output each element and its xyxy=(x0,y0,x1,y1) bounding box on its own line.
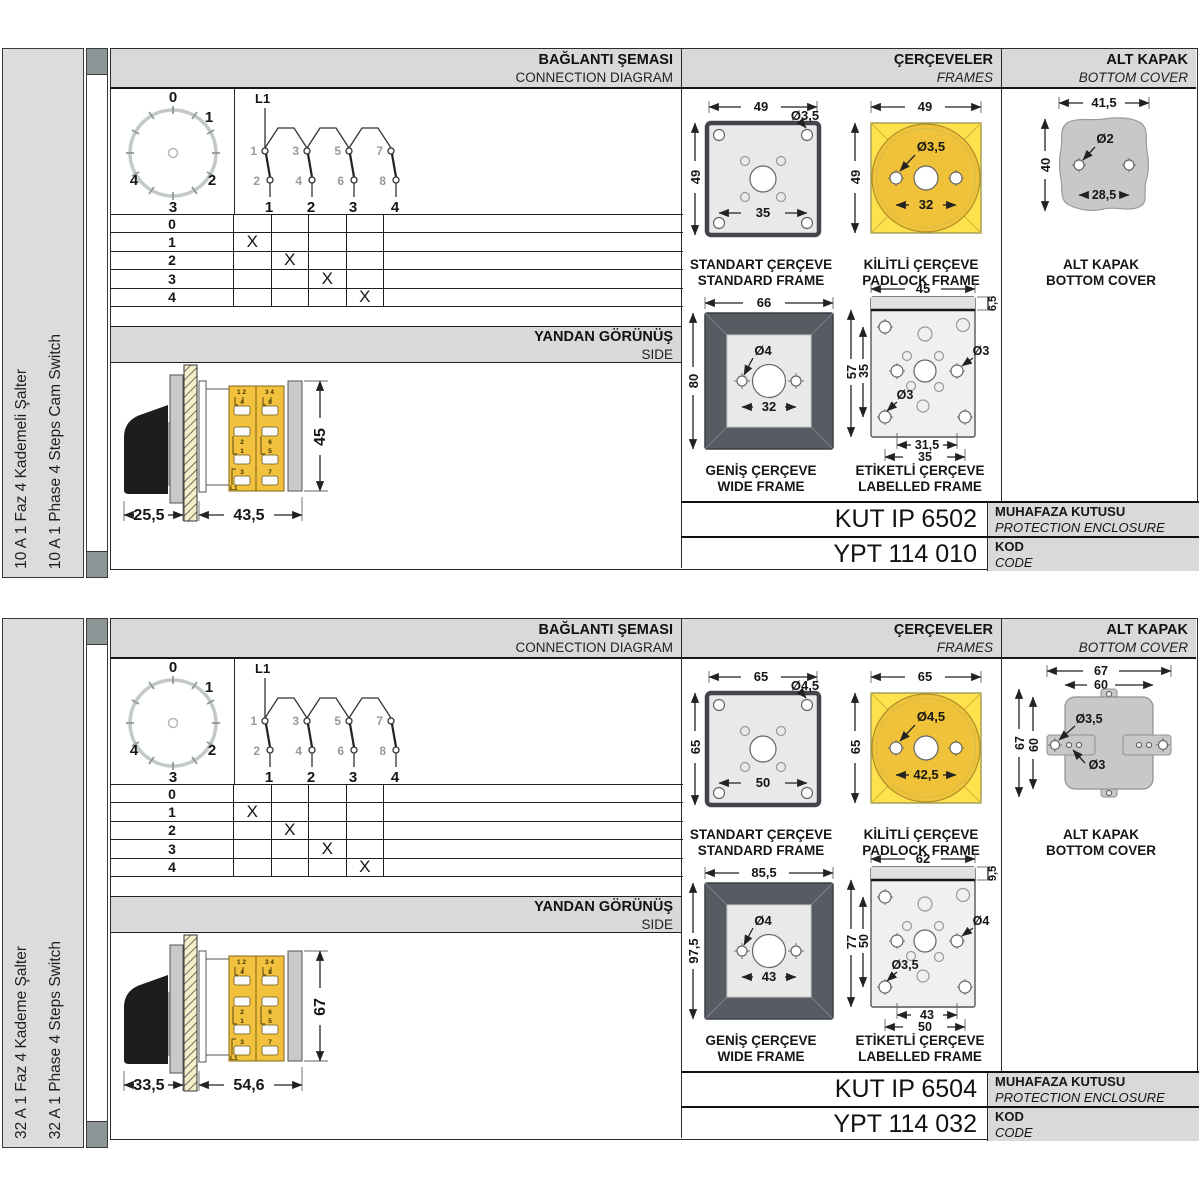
caption-en: WIDE FRAME xyxy=(683,1049,839,1065)
mark-cell xyxy=(309,233,347,250)
dim-width: 66 xyxy=(757,295,771,310)
dial-label-1: 1 xyxy=(205,679,213,696)
code-value: YPT 114 032 xyxy=(681,1108,987,1141)
mark-cell xyxy=(272,803,310,820)
dim-hole: Ø4,5 xyxy=(791,678,819,693)
mounting-panel xyxy=(184,365,197,521)
body-label: 6 xyxy=(268,1009,272,1016)
dim-height-inner: 50 xyxy=(857,934,871,948)
mark-cell xyxy=(272,289,310,306)
header-en: BOTTOM COVER xyxy=(1001,639,1188,656)
dim-width: 85,5 xyxy=(751,865,776,880)
enclosure-row: KUT IP 6504 MUHAFAZA KUTUSU PROTECTION E… xyxy=(681,1071,1199,1106)
neck xyxy=(206,959,229,1055)
row-label: 0 xyxy=(111,785,234,802)
enclosure-label: MUHAFAZA KUTUSU PROTECTION ENCLOSURE xyxy=(987,503,1199,536)
dim-span: 43 xyxy=(762,969,776,984)
dim-hole-small: Ø3 xyxy=(1089,758,1106,772)
header-en: CONNECTION DIAGRAM xyxy=(111,69,673,86)
dial-label-0: 0 xyxy=(169,659,177,676)
header-tr: BAĞLANTI ŞEMASI xyxy=(111,621,673,639)
body-label: 4 xyxy=(240,969,244,976)
catalog-page: 10 A 1 Faz 4 Kademeli Şalter 10 A 1 Phas… xyxy=(0,0,1200,1200)
divider xyxy=(681,49,682,568)
product-title-tr: 10 A 1 Faz 4 Kademeli Şalter xyxy=(13,369,31,569)
body-label: 2 xyxy=(240,439,244,446)
row-label: 3 xyxy=(111,270,234,287)
dial-label-2: 2 xyxy=(208,172,216,189)
body-label: 3 xyxy=(240,469,244,476)
dim-height: 45 xyxy=(312,428,329,446)
caption-tr: ALT KAPAK xyxy=(1003,827,1199,843)
label-strip xyxy=(871,297,975,310)
table-row: 0 xyxy=(111,214,683,232)
caption-en: BOTTOM COVER xyxy=(1003,273,1199,289)
dim-height: 67 xyxy=(312,998,329,1016)
product-title-en: 32 A 1 Phase 4 Steps Switch xyxy=(47,941,65,1139)
binding-strip xyxy=(86,618,108,1148)
mark-cell xyxy=(347,822,385,839)
divider xyxy=(681,619,682,1138)
mark-cell: X xyxy=(272,822,310,839)
terminal-number: 5 xyxy=(334,714,341,728)
mark-cell xyxy=(309,215,347,232)
dial-label-2: 2 xyxy=(208,742,216,759)
body-feed-label: L1 xyxy=(230,485,238,492)
standard-frame-drawing: 49 49 Ø3,5 35 xyxy=(683,91,839,255)
terminal-number: 7 xyxy=(376,144,383,158)
terminal-number: 1 xyxy=(250,714,257,728)
code-label: KOD CODE xyxy=(987,1108,1199,1141)
side-view-header: YANDAN GÖRÜNÜŞ SIDE xyxy=(111,326,681,363)
dim-span: 32 xyxy=(762,399,776,414)
row-label: 2 xyxy=(111,822,234,839)
label-tr: MUHAFAZA KUTUSU xyxy=(995,504,1199,520)
body-label: 3 4 xyxy=(265,959,274,966)
code-row: YPT 114 010 KOD CODE xyxy=(681,536,1199,571)
switch-position-dial: 0 1 2 3 4 xyxy=(111,90,234,214)
mark-cell xyxy=(272,859,310,876)
bottom-cover-drawing: 41,5 40 Ø2 28,5 xyxy=(1003,93,1199,255)
table-row: 3 X xyxy=(111,839,683,857)
standard-frame-caption: STANDART ÇERÇEVE STANDARD FRAME xyxy=(683,257,839,289)
table-row: 4 X xyxy=(111,288,683,306)
row-label: 1 xyxy=(111,803,234,820)
switching-table: 0 1 X 2 X 3 xyxy=(111,784,683,876)
contact-1: 1 2 1 xyxy=(250,144,273,216)
dim-span: 32 xyxy=(919,197,933,212)
mark-cell xyxy=(347,215,385,232)
dim-strip: 9,5 xyxy=(987,866,999,881)
mark-cell xyxy=(309,859,347,876)
contact-2: 3 4 2 xyxy=(292,144,315,216)
mark-cell xyxy=(234,215,272,232)
dim-depth-body: 54,6 xyxy=(233,1077,264,1094)
wide-frame-drawing: 85,5 97,5 Ø4 43 xyxy=(683,861,839,1031)
labelled-frame-drawing: 62 9,5 Ø4 Ø3,5 77 50 xyxy=(841,849,999,1033)
dim-span: 28,5 xyxy=(1092,188,1116,202)
dim-height: 49 xyxy=(688,170,703,184)
front-plate xyxy=(170,945,183,1073)
feed-label: L1 xyxy=(255,661,270,676)
product-sidebar: 10 A 1 Faz 4 Kademeli Şalter 10 A 1 Phas… xyxy=(2,48,84,578)
body-label: 2 xyxy=(240,1009,244,1016)
terminal-number: 8 xyxy=(379,174,386,188)
mark-cell xyxy=(234,859,272,876)
row-label: 2 xyxy=(111,252,234,269)
feed-label: L1 xyxy=(255,91,270,106)
dim-height: 49 xyxy=(848,170,863,184)
mark-cell: X xyxy=(309,840,347,857)
caption-tr: GENİŞ ÇERÇEVE xyxy=(683,463,839,479)
mark-cell xyxy=(309,252,347,269)
flange xyxy=(199,381,206,492)
contact-2: 3 4 2 xyxy=(292,714,315,786)
row-label: 0 xyxy=(111,215,234,232)
mark-cell xyxy=(272,215,310,232)
standard-frame-drawing: 65 65 Ø4,5 50 xyxy=(683,661,839,825)
frames-header: ÇERÇEVELER FRAMES xyxy=(681,619,1001,659)
dim-width: 49 xyxy=(918,99,932,114)
caption-tr: STANDART ÇERÇEVE xyxy=(683,257,839,273)
caption-en: STANDARD FRAME xyxy=(683,843,839,859)
dim-hole: Ø4 xyxy=(754,343,772,358)
mark-cell xyxy=(234,289,272,306)
row-label: 3 xyxy=(111,840,234,857)
mark-cell: X xyxy=(309,270,347,287)
mark-cell xyxy=(347,785,385,802)
body-feed-label: L1 xyxy=(230,1055,238,1062)
label-en: PROTECTION ENCLOSURE xyxy=(995,520,1199,535)
mark-cell xyxy=(347,270,385,287)
table-row: 1 X xyxy=(111,232,683,250)
dim-hole: Ø3,5 xyxy=(791,108,819,123)
dim-hole: Ø4 xyxy=(754,913,772,928)
panel-content: BAĞLANTI ŞEMASI CONNECTION DIAGRAM ÇERÇE… xyxy=(110,618,1198,1140)
table-row: 2 X xyxy=(111,251,683,269)
dim-height-inner: 60 xyxy=(1027,738,1041,752)
label-strip xyxy=(871,867,975,880)
wide-frame-caption: GENİŞ ÇERÇEVE WIDE FRAME xyxy=(683,463,839,495)
terminal-number: 4 xyxy=(295,174,302,188)
terminal-number: 8 xyxy=(379,744,386,758)
terminal-number: 2 xyxy=(253,744,260,758)
dim-depth-body: 43,5 xyxy=(233,507,264,524)
mark-cell xyxy=(272,840,310,857)
mark-cell xyxy=(347,252,385,269)
order-info: KUT IP 6504 MUHAFAZA KUTUSU PROTECTION E… xyxy=(681,1071,1199,1141)
mark-cell xyxy=(234,270,272,287)
contact-3: 5 6 3 xyxy=(334,714,357,786)
end-cap xyxy=(288,381,302,491)
dim-span-outer: 35 xyxy=(918,450,932,464)
dim-width-outer: 67 xyxy=(1094,664,1108,678)
padlock-frame-drawing: 65 65 Ø4,5 42,5 xyxy=(843,661,999,825)
row-label: 4 xyxy=(111,859,234,876)
terminal-number: 6 xyxy=(337,744,344,758)
dim-width: 45 xyxy=(916,281,930,296)
header-tr: YANDAN GÖRÜNÜŞ xyxy=(111,898,673,916)
body-label: 3 4 xyxy=(265,389,274,396)
header-tr: YANDAN GÖRÜNÜŞ xyxy=(111,328,673,346)
connection-diagram-header: BAĞLANTI ŞEMASI CONNECTION DIAGRAM xyxy=(111,49,681,89)
terminal-number: 7 xyxy=(376,714,383,728)
mark-cell: X xyxy=(234,233,272,250)
neck xyxy=(206,389,229,485)
code-label: KOD CODE xyxy=(987,538,1199,571)
dim-height: 97,5 xyxy=(686,938,701,963)
terminal-number: 3 xyxy=(292,144,299,158)
dim-strip: 6,5 xyxy=(987,296,999,311)
terminal-number: 3 xyxy=(292,714,299,728)
dim-height-outer: 67 xyxy=(1013,736,1027,750)
dim-hole-right: Ø4 xyxy=(973,914,990,928)
dial-label-1: 1 xyxy=(205,109,213,126)
body-label: 6 xyxy=(268,439,272,446)
dim-height-inner: 35 xyxy=(857,364,871,378)
switching-table: 0 1 X 2 X 3 xyxy=(111,214,683,306)
caption-tr: STANDART ÇERÇEVE xyxy=(683,827,839,843)
dim-hole: Ø2 xyxy=(1096,131,1113,146)
product-title-en: 10 A 1 Phase 4 Steps Cam Switch xyxy=(47,334,65,569)
dim-hole-right: Ø3 xyxy=(973,344,990,358)
mark-cell xyxy=(347,840,385,857)
bottom-cover-drawing: 67 60 67 60 Ø3,5 Ø3 xyxy=(1003,663,1199,825)
bottom-cover-caption: ALT KAPAK BOTTOM COVER xyxy=(1003,827,1199,859)
header-en: SIDE xyxy=(111,916,673,933)
header-tr: ÇERÇEVELER xyxy=(681,51,993,69)
dim-span-outer: 50 xyxy=(918,1020,932,1034)
dial-label-4: 4 xyxy=(130,172,139,189)
mark-cell xyxy=(234,822,272,839)
labelled-frame-caption: ETİKETLİ ÇERÇEVE LABELLED FRAME xyxy=(841,1033,999,1065)
mark-cell xyxy=(272,233,310,250)
switch-handle xyxy=(124,405,168,494)
product-sidebar: 32 A 1 Faz 4 Kademe Şalter 32 A 1 Phase … xyxy=(2,618,84,1148)
body-label: 7 xyxy=(268,469,272,476)
terminal-number: 2 xyxy=(253,174,260,188)
caption-tr: GENİŞ ÇERÇEVE xyxy=(683,1033,839,1049)
mark-cell xyxy=(272,270,310,287)
strip-square-bottom xyxy=(87,1121,107,1147)
terminal-number: 6 xyxy=(337,174,344,188)
caption-tr: KİLİTLİ ÇERÇEVE xyxy=(843,257,999,273)
dim-hole-left: Ø3,5 xyxy=(891,958,918,972)
divider xyxy=(1001,49,1002,501)
dim-width: 49 xyxy=(754,99,768,114)
table-bottom-line xyxy=(111,306,683,307)
front-plate xyxy=(170,375,183,503)
enclosure-value: KUT IP 6504 xyxy=(681,1073,987,1106)
code-value: YPT 114 010 xyxy=(681,538,987,571)
flange xyxy=(199,951,206,1062)
standard-frame-caption: STANDART ÇERÇEVE STANDARD FRAME xyxy=(683,827,839,859)
dim-depth-front: 33,5 xyxy=(133,1077,164,1094)
labelled-frame-caption: ETİKETLİ ÇERÇEVE LABELLED FRAME xyxy=(841,463,999,495)
caption-tr: ETİKETLİ ÇERÇEVE xyxy=(841,463,999,479)
table-bottom-line xyxy=(111,876,683,877)
table-row: 0 xyxy=(111,784,683,802)
product-panel-10a: 10 A 1 Faz 4 Kademeli Şalter 10 A 1 Phas… xyxy=(0,48,1200,578)
dim-height: 40 xyxy=(1038,158,1053,172)
dim-height: 80 xyxy=(686,374,701,388)
body-label: 5 xyxy=(268,1018,272,1025)
enclosure-row: KUT IP 6502 MUHAFAZA KUTUSU PROTECTION E… xyxy=(681,501,1199,536)
caption-tr: ALT KAPAK xyxy=(1003,257,1199,273)
enclosure-label: MUHAFAZA KUTUSU PROTECTION ENCLOSURE xyxy=(987,1073,1199,1106)
dial-label-4: 4 xyxy=(130,742,139,759)
row-label: 4 xyxy=(111,289,234,306)
bottom-cover-header: ALT KAPAK BOTTOM COVER xyxy=(1001,49,1196,89)
header-tr: ALT KAPAK xyxy=(1001,51,1188,69)
body-label: 3 xyxy=(240,1039,244,1046)
dim-span: 42,5 xyxy=(913,767,938,782)
label-tr: KOD xyxy=(995,539,1199,555)
header-en: SIDE xyxy=(111,346,673,363)
connection-diagram-header: BAĞLANTI ŞEMASI CONNECTION DIAGRAM xyxy=(111,619,681,659)
mark-cell xyxy=(309,803,347,820)
mark-cell: X xyxy=(347,859,385,876)
dim-inner: 50 xyxy=(756,775,770,790)
mark-cell xyxy=(234,252,272,269)
body-label: 5 xyxy=(268,448,272,455)
dim-width: 65 xyxy=(754,669,768,684)
table-row: 1 X xyxy=(111,802,683,820)
body-label: 1 2 xyxy=(237,959,246,966)
switch-position-dial: 0 1 2 3 4 xyxy=(111,660,234,784)
caption-en: BOTTOM COVER xyxy=(1003,843,1199,859)
table-row: 4 X xyxy=(111,858,683,876)
dim-width: 62 xyxy=(916,851,930,866)
dim-width: 41,5 xyxy=(1091,95,1116,110)
mark-cell: X xyxy=(272,252,310,269)
contact-schematic: L1 1 2 1 3 4 2 5 6 3 xyxy=(235,90,485,214)
contact-3: 5 6 3 xyxy=(334,144,357,216)
caption-tr: ETİKETLİ ÇERÇEVE xyxy=(841,1033,999,1049)
body-label: 1 xyxy=(240,1018,244,1025)
dim-hole: Ø3,5 xyxy=(917,139,945,154)
dim-depth-front: 25,5 xyxy=(133,507,164,524)
label-en: CODE xyxy=(995,555,1199,570)
body-label: 8 xyxy=(268,399,272,406)
dim-inner: 35 xyxy=(756,205,770,220)
header-en: BOTTOM COVER xyxy=(1001,69,1188,86)
table-row: 3 X xyxy=(111,269,683,287)
product-panel-32a: 32 A 1 Faz 4 Kademe Şalter 32 A 1 Phase … xyxy=(0,618,1200,1148)
mark-cell xyxy=(272,785,310,802)
contact-1: 1 2 1 xyxy=(250,714,273,786)
end-cap xyxy=(288,951,302,1061)
caption-en: LABELLED FRAME xyxy=(841,1049,999,1065)
mark-cell xyxy=(347,233,385,250)
mark-cell xyxy=(234,785,272,802)
bridge-links xyxy=(265,128,391,148)
header-en: FRAMES xyxy=(681,639,993,656)
mark-cell xyxy=(347,803,385,820)
code-row: YPT 114 032 KOD CODE xyxy=(681,1106,1199,1141)
contact-4: 7 8 4 xyxy=(376,714,400,786)
terminal-number: 4 xyxy=(295,744,302,758)
contact-schematic: L1 1 2 1 3 4 2 5 6 3 xyxy=(235,660,485,784)
caption-tr: KİLİTLİ ÇERÇEVE xyxy=(843,827,999,843)
product-title-tr: 32 A 1 Faz 4 Kademe Şalter xyxy=(13,946,31,1139)
strip-square-top xyxy=(87,49,107,75)
mark-cell xyxy=(309,289,347,306)
body-label: 8 xyxy=(268,969,272,976)
body-label: 1 xyxy=(240,448,244,455)
labelled-frame-drawing: 45 6,5 Ø3 Ø3 57 35 xyxy=(841,279,999,463)
binding-strip xyxy=(86,48,108,578)
row-label: 1 xyxy=(111,233,234,250)
dim-hole-left: Ø3 xyxy=(897,388,914,402)
header-tr: ALT KAPAK xyxy=(1001,621,1188,639)
mark-cell: X xyxy=(234,803,272,820)
side-view-header: YANDAN GÖRÜNÜŞ SIDE xyxy=(111,896,681,933)
terminal-number: 5 xyxy=(334,144,341,158)
bridge-links xyxy=(265,698,391,718)
mark-cell: X xyxy=(347,289,385,306)
contact-4: 7 8 4 xyxy=(376,144,400,216)
body-label: 7 xyxy=(268,1039,272,1046)
label-tr: KOD xyxy=(995,1109,1199,1125)
mark-cell xyxy=(234,840,272,857)
header-tr: BAĞLANTI ŞEMASI xyxy=(111,51,673,69)
switch-handle xyxy=(124,975,168,1064)
dial-label-0: 0 xyxy=(169,89,177,106)
side-view-drawing: 1 2 4 2 1 3 L1 3 4 8 6 5 7 25,5 43,5 45 xyxy=(116,363,596,535)
enclosure-value: KUT IP 6502 xyxy=(681,503,987,536)
order-info: KUT IP 6502 MUHAFAZA KUTUSU PROTECTION E… xyxy=(681,501,1199,571)
mark-cell xyxy=(309,822,347,839)
side-view-drawing: 1 2 4 2 1 3 L1 3 4 8 6 5 7 33,5 54,6 67 xyxy=(116,933,596,1105)
wide-frame-drawing: 66 80 Ø4 32 xyxy=(683,291,839,461)
label-tr: MUHAFAZA KUTUSU xyxy=(995,1074,1199,1090)
caption-en: STANDARD FRAME xyxy=(683,273,839,289)
bottom-cover-header: ALT KAPAK BOTTOM COVER xyxy=(1001,619,1196,659)
panel-content: BAĞLANTI ŞEMASI CONNECTION DIAGRAM ÇERÇE… xyxy=(110,48,1198,570)
header-en: CONNECTION DIAGRAM xyxy=(111,639,673,656)
dim-hole: Ø4,5 xyxy=(917,709,945,724)
body-label: 1 2 xyxy=(237,389,246,396)
dim-height: 65 xyxy=(848,740,863,754)
bottom-cover-caption: ALT KAPAK BOTTOM COVER xyxy=(1003,257,1199,289)
frames-header: ÇERÇEVELER FRAMES xyxy=(681,49,1001,89)
wide-frame-caption: GENİŞ ÇERÇEVE WIDE FRAME xyxy=(683,1033,839,1065)
caption-en: WIDE FRAME xyxy=(683,479,839,495)
body-label: 4 xyxy=(240,399,244,406)
header-en: FRAMES xyxy=(681,69,993,86)
table-row: 2 X xyxy=(111,821,683,839)
strip-square-top xyxy=(87,619,107,645)
terminal-number: 1 xyxy=(250,144,257,158)
strip-square-bottom xyxy=(87,551,107,577)
dim-width: 65 xyxy=(918,669,932,684)
divider xyxy=(1001,619,1002,1071)
header-tr: ÇERÇEVELER xyxy=(681,621,993,639)
mark-cell xyxy=(309,785,347,802)
padlock-frame-drawing: 49 49 Ø3,5 32 xyxy=(843,91,999,255)
caption-en: LABELLED FRAME xyxy=(841,479,999,495)
mounting-panel xyxy=(184,935,197,1091)
dim-height: 65 xyxy=(688,740,703,754)
dim-hole-large: Ø3,5 xyxy=(1075,712,1102,726)
label-en: PROTECTION ENCLOSURE xyxy=(995,1090,1199,1105)
label-en: CODE xyxy=(995,1125,1199,1140)
